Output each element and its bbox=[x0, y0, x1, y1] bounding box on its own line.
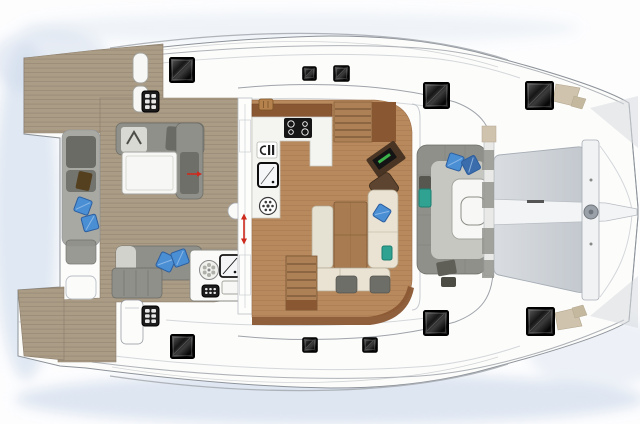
wet-bar-sink bbox=[222, 281, 239, 294]
aft-bulkhead bbox=[238, 98, 252, 314]
fwd-wall-block bbox=[482, 150, 494, 170]
deck-hatch bbox=[424, 311, 448, 335]
fwd-wall-block bbox=[482, 260, 494, 278]
refrigerator-icon bbox=[258, 163, 278, 187]
salon bbox=[252, 99, 420, 325]
deck-hatch bbox=[171, 335, 194, 358]
blue-pillow bbox=[81, 214, 99, 232]
vent-icon bbox=[259, 99, 273, 110]
stb-bench bbox=[112, 268, 162, 298]
swim-platform-starboard bbox=[18, 287, 64, 360]
deck-hatch bbox=[334, 66, 349, 81]
port-bench-cushion bbox=[66, 136, 96, 168]
deck-hatch bbox=[303, 67, 316, 80]
fwd-wall-block bbox=[482, 182, 494, 208]
fwd-dark-cushion bbox=[419, 176, 431, 190]
port-bench-seat bbox=[66, 240, 96, 264]
stair-landing bbox=[286, 300, 317, 310]
cockpit-table bbox=[122, 152, 177, 194]
windlass-center bbox=[589, 210, 594, 215]
walkway-grip bbox=[527, 200, 544, 203]
ice-box-icon bbox=[220, 255, 240, 277]
deck-hatch bbox=[424, 83, 449, 108]
vent-grid-icon bbox=[142, 306, 159, 326]
sink-faucet-icon bbox=[257, 142, 277, 158]
stair-landing bbox=[372, 102, 396, 142]
stool bbox=[370, 276, 390, 293]
teal-cushion bbox=[419, 189, 431, 207]
fwd-dark-cushion bbox=[441, 277, 456, 287]
stove-burners-icon bbox=[284, 118, 312, 138]
stool bbox=[336, 276, 357, 293]
vent-grid-icon bbox=[142, 91, 159, 112]
stairs-port bbox=[334, 102, 396, 142]
beam-fitting bbox=[590, 243, 593, 246]
fwd-wall-block bbox=[482, 228, 494, 254]
deck-plan-svg bbox=[0, 0, 640, 424]
washing-machine-icon bbox=[260, 198, 277, 215]
deck-hatch bbox=[363, 338, 377, 352]
engine-hatch bbox=[66, 276, 96, 299]
stb-locker bbox=[121, 300, 143, 344]
davit-roll bbox=[133, 53, 148, 83]
fwd-beige-block bbox=[482, 126, 496, 142]
grill-burner-icon bbox=[200, 261, 219, 280]
deck-hatch bbox=[170, 58, 194, 82]
vent-grid-icon bbox=[202, 285, 219, 297]
forward-crossbeam bbox=[582, 140, 599, 300]
stairs-starboard bbox=[286, 256, 317, 310]
deck-hatch bbox=[527, 308, 554, 335]
beam-fitting bbox=[590, 179, 593, 182]
deck-hatch bbox=[303, 338, 317, 352]
deck-hatch bbox=[526, 82, 553, 109]
side-bench-cushion bbox=[180, 152, 199, 194]
catamaran-deck-plan bbox=[0, 0, 640, 424]
teal-cushion bbox=[382, 246, 392, 260]
